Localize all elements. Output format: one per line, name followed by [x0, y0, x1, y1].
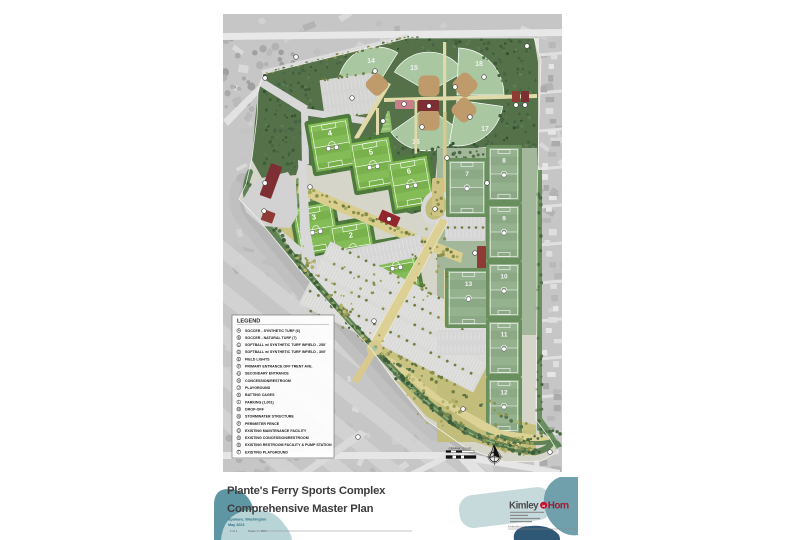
- svg-text:May 2023: May 2023: [228, 523, 244, 527]
- svg-text:PLAYGROUND: PLAYGROUND: [245, 386, 271, 390]
- svg-text:17: 17: [481, 126, 489, 133]
- svg-text:Scale 1"=200': Scale 1"=200': [248, 529, 267, 533]
- svg-text:PERIMETER FENCE: PERIMETER FENCE: [245, 422, 280, 426]
- svg-text:14: 14: [367, 58, 375, 65]
- svg-text:KimleyHorn.com: KimleyHorn.com: [508, 525, 527, 529]
- svg-text:PRIMARY ENTRANCE OFF TRENT AVE: PRIMARY ENTRANCE OFF TRENT AVE.: [245, 365, 312, 369]
- svg-text:»: »: [542, 504, 545, 510]
- svg-text:P: P: [238, 422, 240, 426]
- svg-text:SOCCER - NATURAL TURF (7): SOCCER - NATURAL TURF (7): [245, 336, 297, 340]
- svg-text:EXISTING CONCESSION/RESTROOM: EXISTING CONCESSION/RESTROOM: [245, 436, 309, 440]
- svg-text:B: B: [238, 336, 240, 340]
- svg-text:9: 9: [502, 216, 506, 223]
- svg-text:Comprehensive Master Plan: Comprehensive Master Plan: [227, 503, 374, 515]
- svg-text:18: 18: [475, 61, 483, 68]
- svg-text:CONCESSION/RESTROOM: CONCESSION/RESTROOM: [245, 379, 291, 383]
- svg-text:1 of 1: 1 of 1: [230, 529, 238, 533]
- svg-text:F: F: [238, 364, 240, 368]
- svg-text:FIELD LIGHTS: FIELD LIGHTS: [245, 357, 270, 361]
- svg-text:EXISTING RESTROOM FACILITY & P: EXISTING RESTROOM FACILITY & PUMP STATIO…: [245, 443, 332, 447]
- svg-text:STORMWATER STRUCTURE: STORMWATER STRUCTURE: [245, 415, 294, 419]
- svg-text:SECONDARY ENTRANCE: SECONDARY ENTRANCE: [245, 372, 289, 376]
- svg-text:BATTING CAGES: BATTING CAGES: [245, 393, 275, 397]
- svg-text:SOCCER - SYNTHETIC TURF (6): SOCCER - SYNTHETIC TURF (6): [245, 329, 301, 333]
- svg-text:SOFTBALL w/ SYNTHETIC TURF INF: SOFTBALL w/ SYNTHETIC TURF INFIELD - 250…: [245, 343, 326, 347]
- svg-text:L: L: [238, 400, 240, 404]
- svg-text:13: 13: [465, 281, 473, 288]
- svg-text:DROP-OFF: DROP-OFF: [245, 407, 265, 411]
- svg-text:SOFTBALL w/ SYNTHETIC TURF INF: SOFTBALL w/ SYNTHETIC TURF INFIELD - 300…: [245, 350, 326, 354]
- svg-text:T: T: [238, 450, 240, 454]
- svg-text:Horn: Horn: [548, 501, 569, 512]
- svg-text:12: 12: [500, 390, 508, 397]
- svg-text:Plante's Ferry Sports Complex: Plante's Ferry Sports Complex: [227, 485, 386, 497]
- svg-text:11: 11: [501, 332, 508, 339]
- svg-text:7: 7: [465, 171, 469, 178]
- svg-text:8: 8: [502, 158, 506, 165]
- svg-text:E: E: [238, 357, 240, 361]
- svg-text:EXISTING MAINTENANCE FACILITY: EXISTING MAINTENANCE FACILITY: [245, 429, 307, 433]
- svg-text:EXISTING PLAYGROUND: EXISTING PLAYGROUND: [245, 450, 288, 454]
- svg-text:M: M: [237, 407, 240, 411]
- svg-text:10: 10: [500, 274, 508, 281]
- svg-text:PARKING (1,001): PARKING (1,001): [245, 400, 274, 404]
- svg-text:GRAPHIC SCALE: GRAPHIC SCALE: [449, 447, 472, 451]
- svg-text:Kimley: Kimley: [509, 501, 539, 512]
- svg-text:S: S: [238, 443, 240, 447]
- svg-text:Spokane, Washington: Spokane, Washington: [228, 518, 267, 522]
- svg-text:LEGEND: LEGEND: [237, 319, 260, 325]
- svg-text:15: 15: [410, 65, 418, 72]
